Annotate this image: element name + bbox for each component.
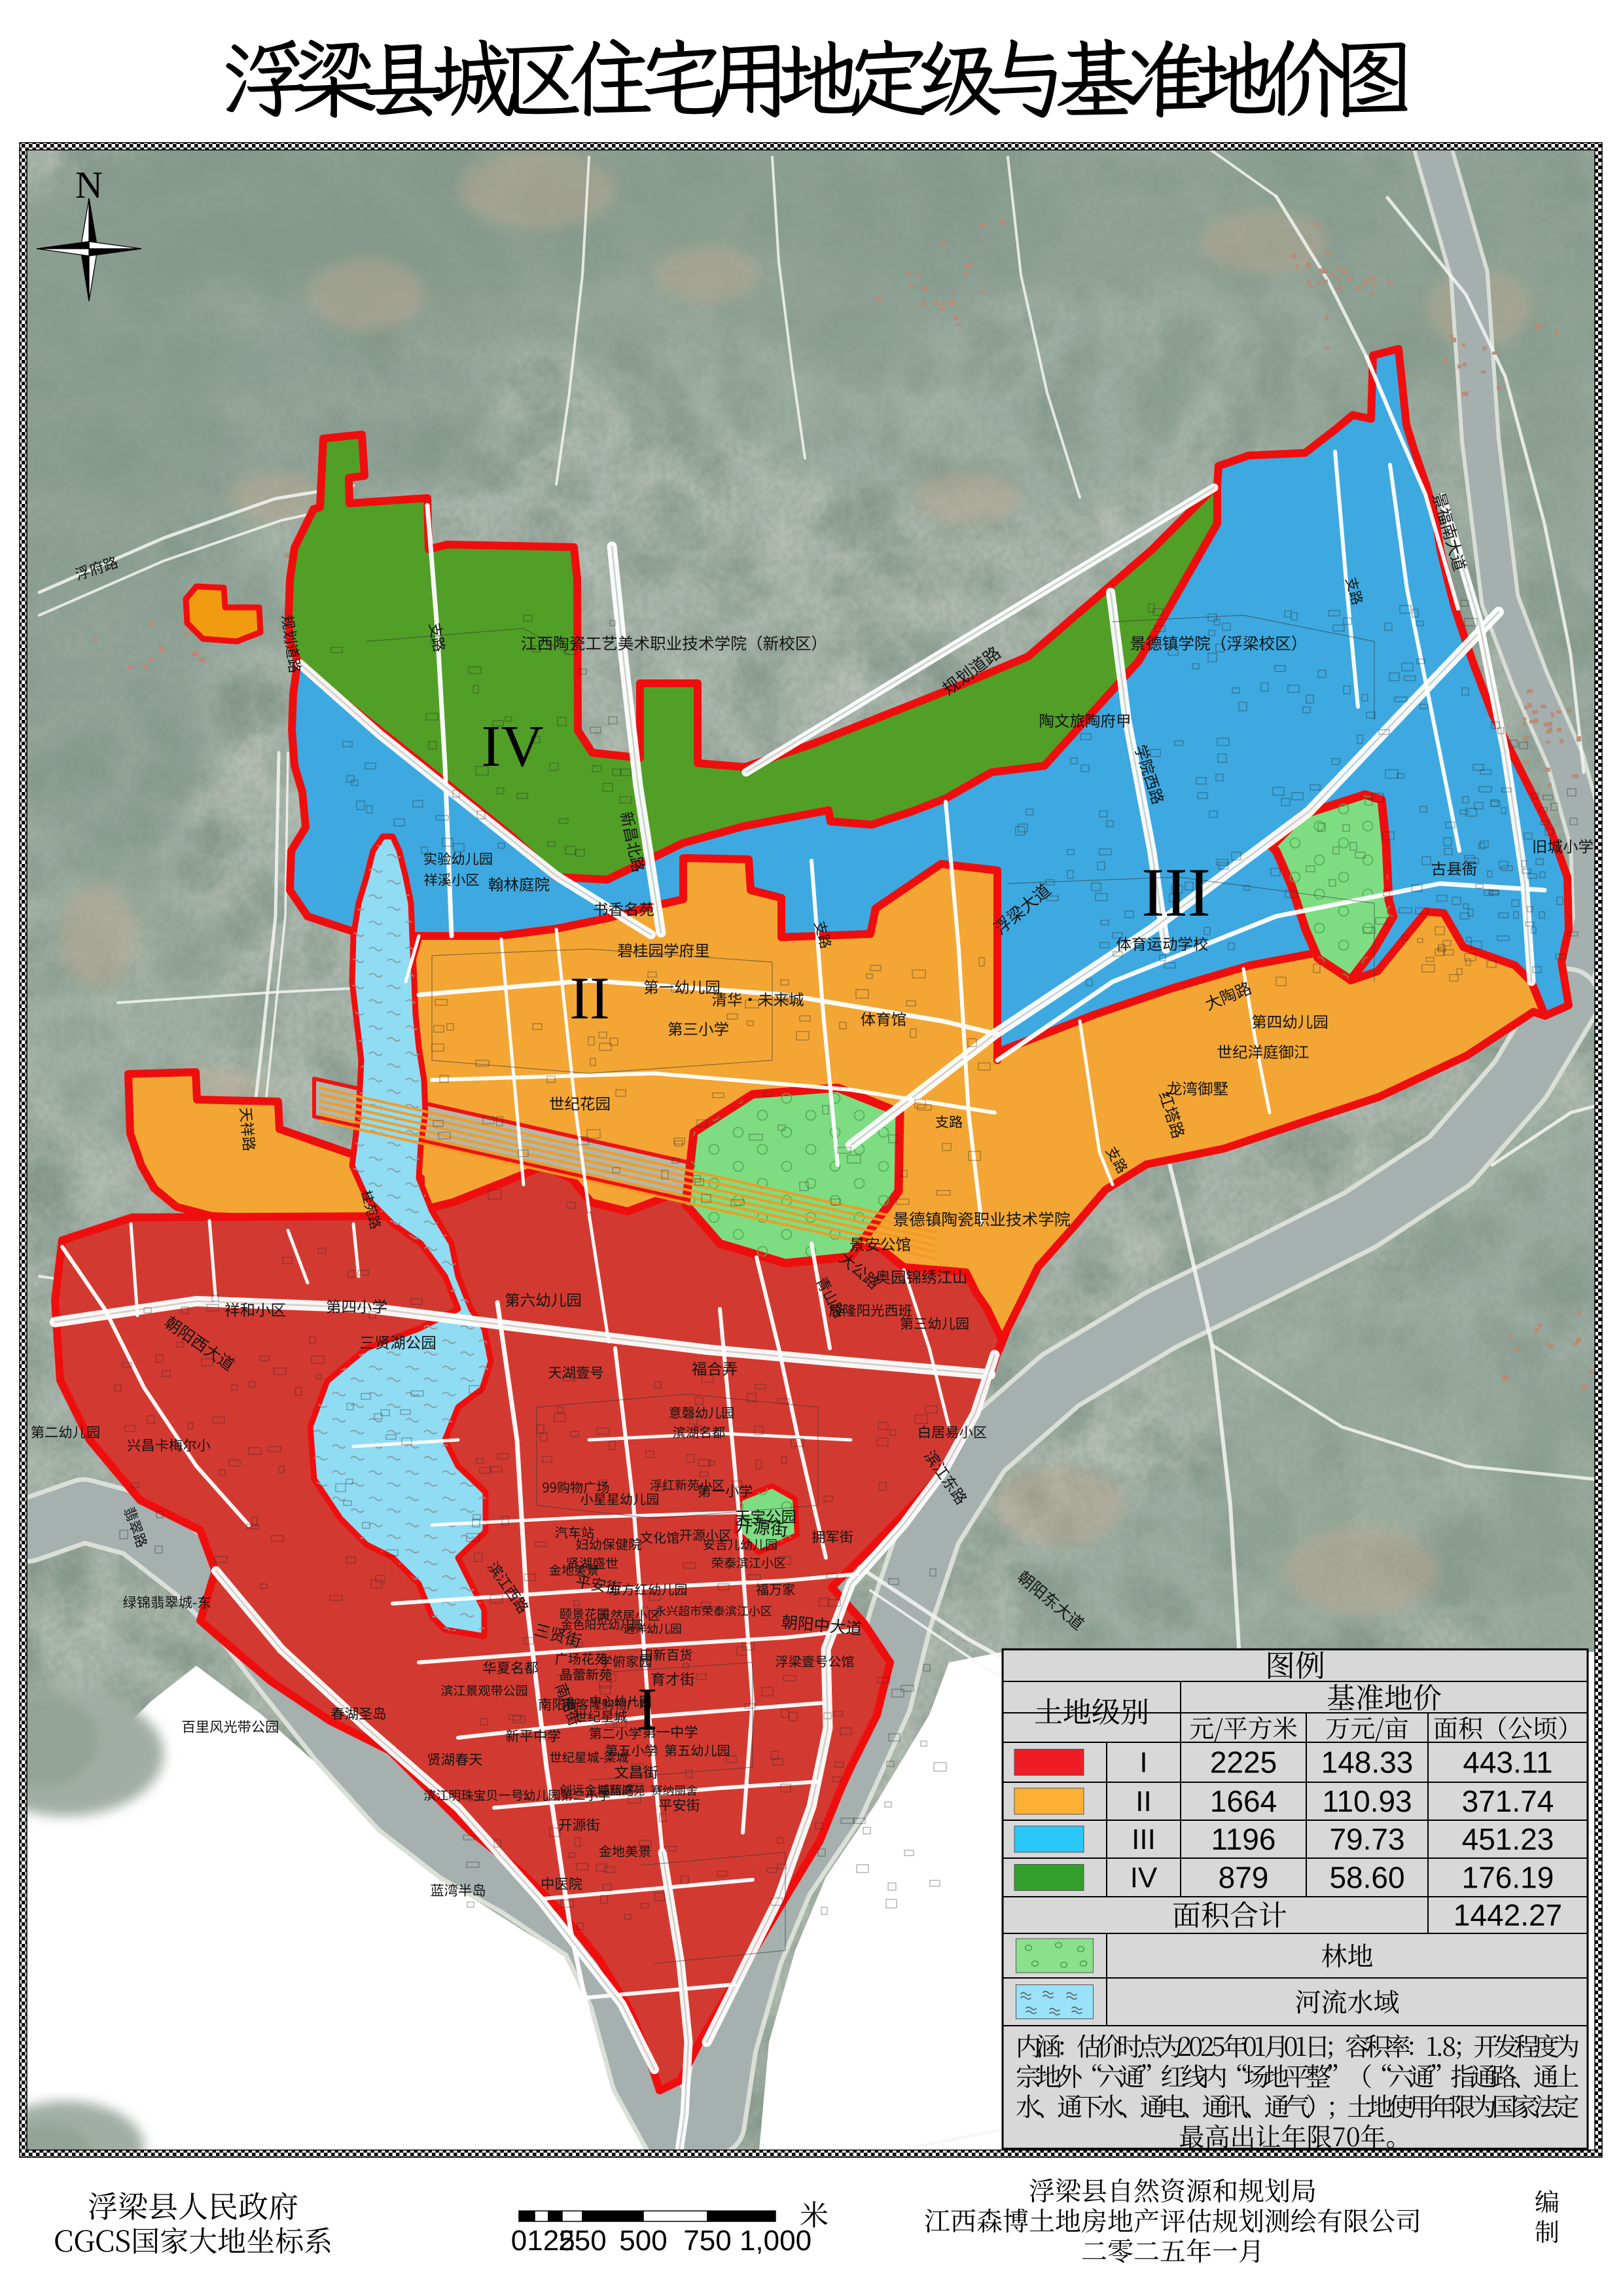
svg-text:176.19: 176.19 bbox=[1462, 1861, 1554, 1895]
svg-text:1196: 1196 bbox=[1211, 1822, 1276, 1856]
svg-text:879: 879 bbox=[1219, 1861, 1269, 1895]
svg-text:III: III bbox=[1132, 1823, 1156, 1856]
svg-text:79.73: 79.73 bbox=[1329, 1822, 1404, 1856]
svg-text:I: I bbox=[1139, 1747, 1147, 1779]
svg-text:IV: IV bbox=[1130, 1862, 1158, 1894]
svg-text:451.23: 451.23 bbox=[1462, 1822, 1554, 1856]
svg-text:IV: IV bbox=[482, 714, 544, 779]
svg-text:110.93: 110.93 bbox=[1322, 1784, 1412, 1818]
svg-text:750: 750 bbox=[683, 2225, 731, 2257]
svg-text:II: II bbox=[569, 965, 609, 1031]
svg-text:2225: 2225 bbox=[1210, 1746, 1277, 1780]
svg-text:II: II bbox=[1135, 1785, 1151, 1818]
svg-text:I: I bbox=[637, 1676, 658, 1742]
svg-text:148.33: 148.33 bbox=[1321, 1746, 1414, 1780]
svg-text:500: 500 bbox=[619, 2225, 667, 2257]
svg-text:1664: 1664 bbox=[1210, 1784, 1277, 1818]
svg-text:58.60: 58.60 bbox=[1329, 1861, 1404, 1895]
svg-text:1,000: 1,000 bbox=[740, 2225, 811, 2257]
svg-text:371.74: 371.74 bbox=[1462, 1784, 1554, 1818]
svg-text:1442.27: 1442.27 bbox=[1454, 1898, 1562, 1932]
svg-text:0: 0 bbox=[511, 2225, 527, 2257]
svg-text:N: N bbox=[75, 164, 103, 206]
svg-text:443.11: 443.11 bbox=[1463, 1746, 1552, 1780]
svg-text:III: III bbox=[1141, 854, 1211, 931]
svg-text:250: 250 bbox=[558, 2225, 606, 2257]
